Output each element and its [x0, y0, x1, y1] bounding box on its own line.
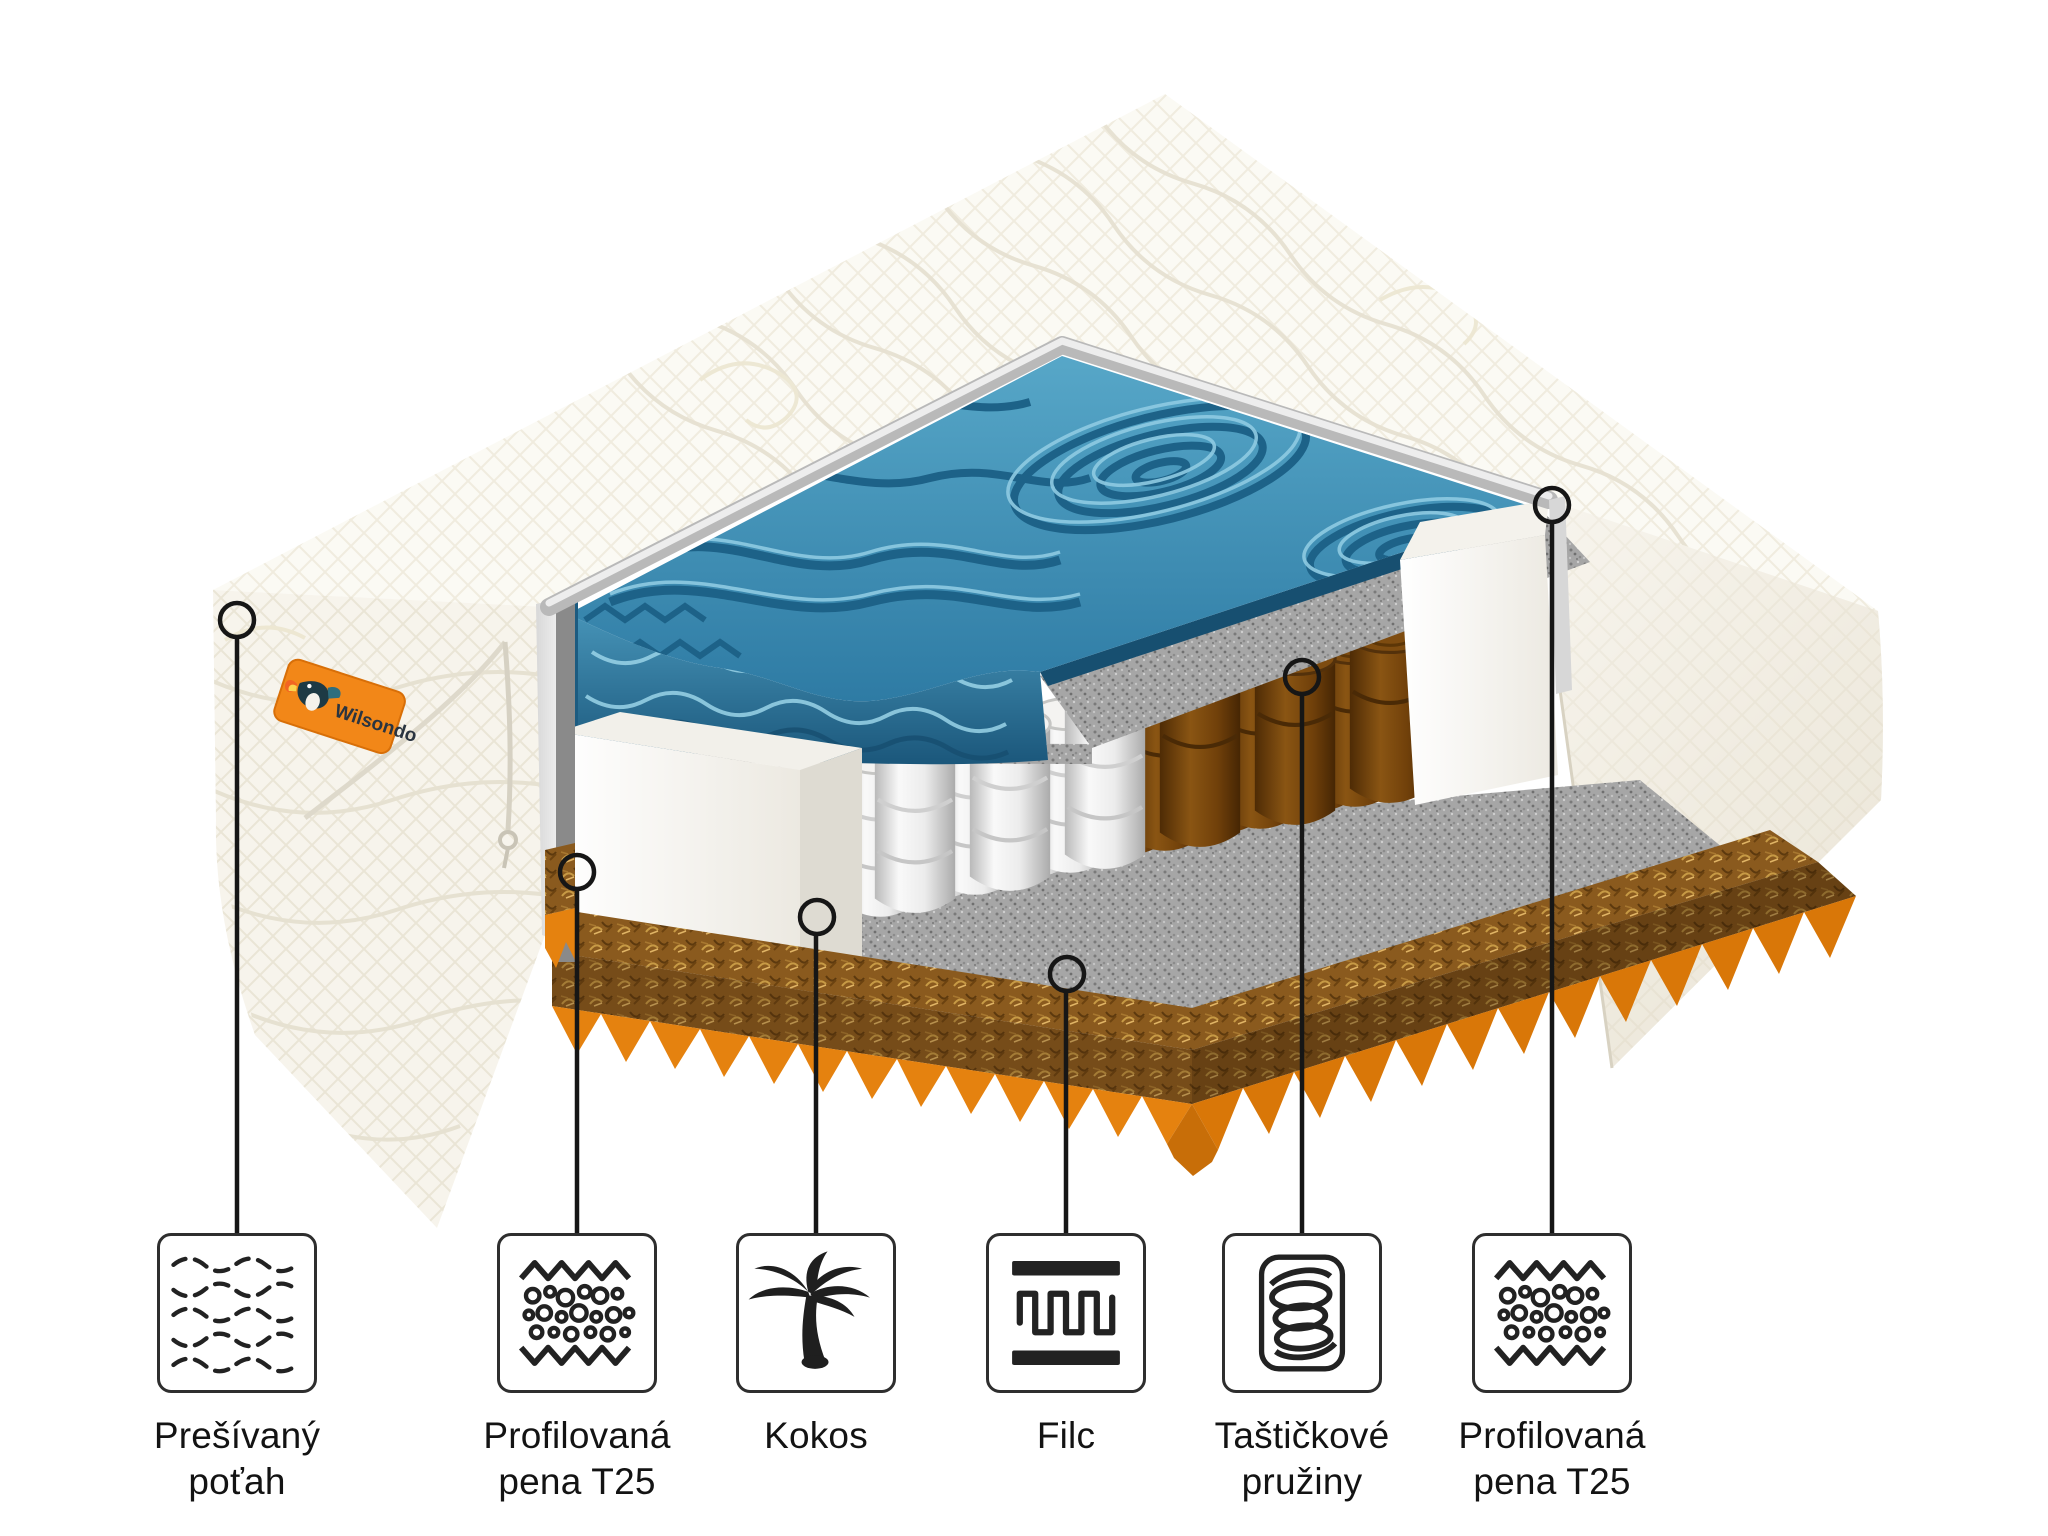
legend-label: Filc — [946, 1413, 1186, 1459]
quilted-cover-icon — [157, 1233, 317, 1393]
legend-item-quilted-cover: Prešívaný poťah — [117, 1233, 357, 1505]
legend-label: Kokos — [696, 1413, 936, 1459]
legend-item-coconut: Kokos — [696, 1233, 936, 1459]
pocket-springs-icon — [1222, 1233, 1382, 1393]
profiled-foam-icon — [1472, 1233, 1632, 1393]
felt-icon — [986, 1233, 1146, 1393]
legend-item-felt: Filc — [946, 1233, 1186, 1459]
legend-label: Prešívaný poťah — [117, 1413, 357, 1505]
legend-item-profiled-foam-2: Profilovaná pena T25 — [1432, 1233, 1672, 1505]
legend-item-pocket-springs: Taštičkové pružiny — [1182, 1233, 1422, 1505]
cover-cut-edge — [536, 596, 575, 968]
legend-label: Profilovaná pena T25 — [1432, 1413, 1672, 1505]
profiled-foam-icon — [497, 1233, 657, 1393]
legend-item-profiled-foam: Profilovaná pena T25 — [457, 1233, 697, 1505]
coconut-palm-icon — [736, 1233, 896, 1393]
legend-label: Profilovaná pena T25 — [457, 1413, 697, 1505]
legend-label: Taštičkové pružiny — [1182, 1413, 1422, 1505]
foam-rail-right — [1400, 500, 1558, 805]
mattress-cutaway-figure: Wilsondo — [0, 0, 2048, 1536]
